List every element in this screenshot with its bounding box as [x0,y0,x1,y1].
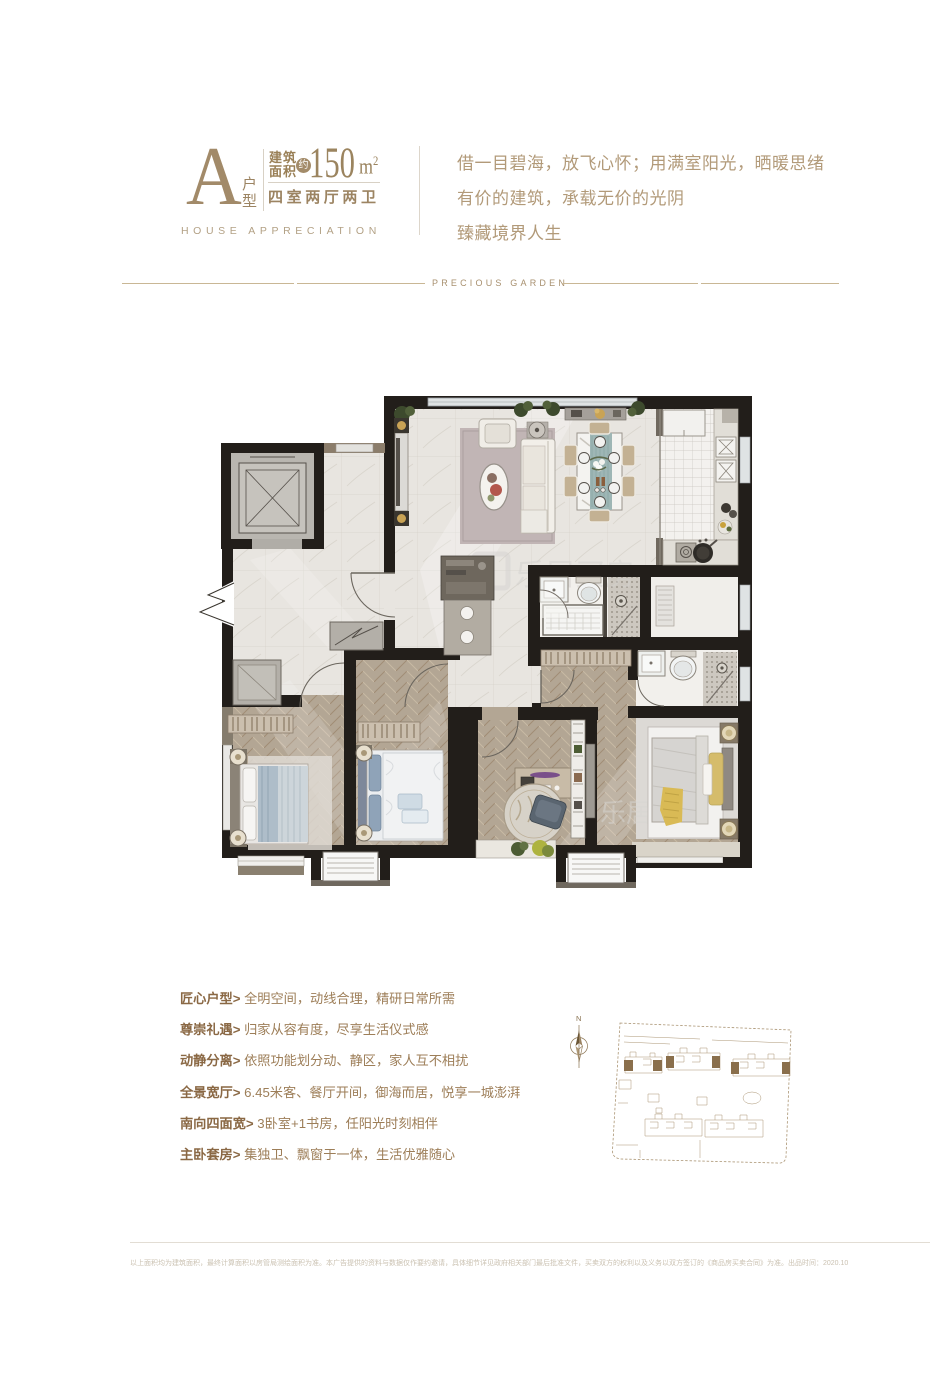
svg-text:N: N [576,1014,581,1023]
